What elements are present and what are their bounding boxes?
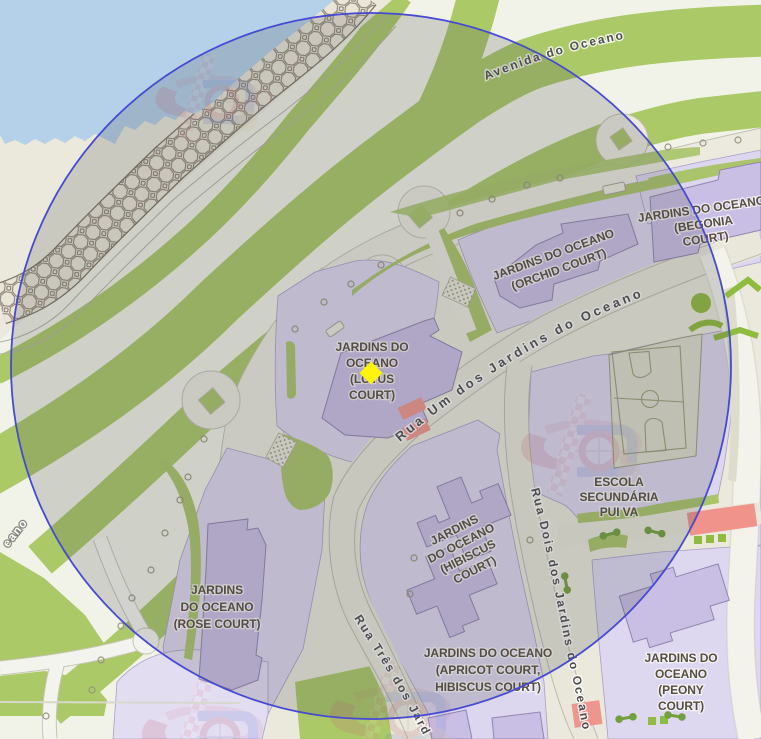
- svg-text:OCEANO: OCEANO: [655, 667, 707, 681]
- svg-text:COURT): COURT): [658, 699, 704, 713]
- svg-text:(PEONY: (PEONY: [658, 683, 704, 697]
- svg-text:JARDINS DO: JARDINS DO: [644, 651, 717, 665]
